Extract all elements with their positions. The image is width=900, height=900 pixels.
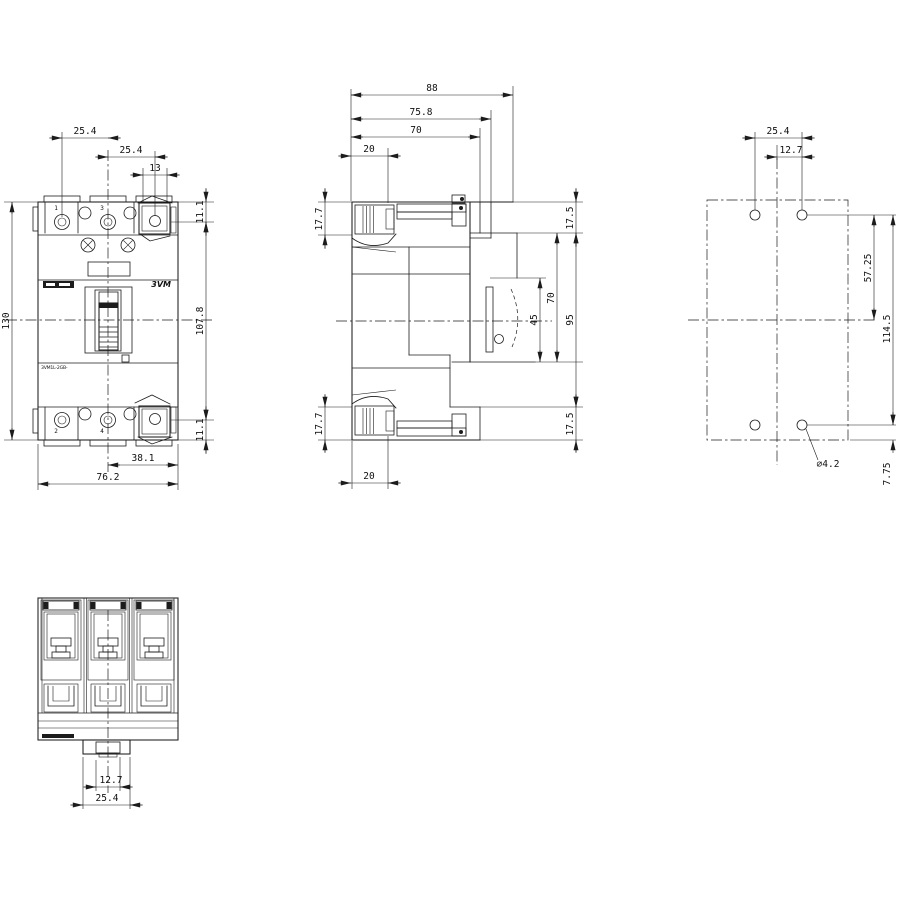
svg-text:76.2: 76.2 <box>97 472 120 483</box>
svg-text:17.7: 17.7 <box>314 208 325 231</box>
dim-bottom-inner: 12.7 <box>83 775 133 787</box>
dim-side-175-bottom: 17.5 <box>565 394 576 453</box>
dim-drill-bottom-offset: 7.75 <box>882 412 893 485</box>
svg-text:17.7: 17.7 <box>314 413 325 436</box>
dim-side-depth-case: 70 <box>351 125 480 137</box>
dim-side-front-95: 95 <box>565 233 576 407</box>
dim-front-pitch2: 25.4 <box>95 145 168 157</box>
dim-front-mid-height: 107.8 <box>195 222 206 420</box>
cover-screw <box>121 238 135 252</box>
dim-bottom-outer: 25.4 <box>70 793 143 805</box>
bottom-pole-modules <box>41 600 174 712</box>
dim-side-depth-cover: 75.8 <box>351 107 491 119</box>
svg-text:12.7: 12.7 <box>100 775 123 786</box>
svg-text:130: 130 <box>1 312 12 329</box>
pole-module-1 <box>41 600 81 712</box>
svg-text:88: 88 <box>426 83 438 94</box>
handle-hook <box>495 335 504 344</box>
svg-text:20: 20 <box>363 144 375 155</box>
dim-front-height: 130 <box>1 202 12 440</box>
dim-side-depth-total: 88 <box>351 83 513 95</box>
pole-number: 3 <box>100 205 104 212</box>
front-centerlines <box>6 150 215 472</box>
svg-text:107.8: 107.8 <box>195 306 206 335</box>
svg-text:7.75: 7.75 <box>882 463 893 486</box>
dim-front-term-bottom: 11.1 <box>195 406 206 454</box>
svg-text:25.4: 25.4 <box>120 145 143 156</box>
svg-text:75.8: 75.8 <box>410 107 433 118</box>
dim-drill-half-pitch: 12.7 <box>764 145 815 157</box>
dim-front-lug-width: 13 <box>130 163 180 175</box>
svg-text:17.5: 17.5 <box>565 207 576 230</box>
dim-side-front-70: 70 <box>546 233 557 362</box>
dim-drill-pitch: 25.4 <box>742 126 815 138</box>
front-cover: 3VM 3VM1L-2GB- <box>41 238 171 371</box>
terminal-strap <box>397 204 466 212</box>
drawing-svg: 1 3 3VM <box>0 0 900 900</box>
svg-text:114.5: 114.5 <box>882 315 893 344</box>
dim-side-177-bottom: 17.7 <box>314 394 325 453</box>
drilling-plan-view: 25.4 12.7 57.25 114.5 <box>688 126 896 485</box>
side-view: 88 75.8 70 20 <box>314 83 583 489</box>
model-text: 3VM1L-2GB- <box>41 365 68 371</box>
handle-travel-arc <box>511 289 518 347</box>
svg-text:⌀4.2: ⌀4.2 <box>817 459 840 470</box>
pole-number: 2 <box>54 428 58 435</box>
dim-front-term-top: 11.1 <box>195 188 206 236</box>
accessory-plate <box>486 287 493 352</box>
terminal-strap <box>397 428 466 436</box>
dim-drill-hole-dia: ⌀4.2 <box>806 429 839 470</box>
pole-number: 1 <box>54 205 58 212</box>
dim-side-front-45: 45 <box>529 278 540 362</box>
front-view: 1 3 3VM <box>1 126 215 490</box>
drill-outline <box>688 158 876 465</box>
pole-module-3 <box>134 600 174 712</box>
technical-drawing-page: 1 3 3VM <box>0 0 900 900</box>
dim-side-rear-bottom: 20 <box>338 471 401 483</box>
brand-badge <box>43 281 74 288</box>
svg-text:11.1: 11.1 <box>195 418 206 441</box>
pole-number: 4 <box>100 428 104 435</box>
dim-side-rear-top: 20 <box>338 144 401 156</box>
svg-text:25.4: 25.4 <box>767 126 790 137</box>
front-bottom-terminals: 2 4 <box>45 395 176 444</box>
terminal-lug <box>139 406 170 437</box>
terminal-screw <box>55 413 70 428</box>
svg-text:95: 95 <box>565 314 576 325</box>
svg-text:45: 45 <box>529 314 540 325</box>
dim-front-pitch1: 25.4 <box>49 126 121 138</box>
bottom-dimensions: 12.7 25.4 <box>70 757 143 809</box>
svg-text:38.1: 38.1 <box>132 453 155 464</box>
drill-dimensions: 25.4 12.7 57.25 114.5 <box>742 126 896 485</box>
brand-logo: 3VM <box>151 280 171 289</box>
bottom-view: 12.7 25.4 <box>38 598 178 809</box>
svg-text:25.4: 25.4 <box>96 793 119 804</box>
dim-drill-full-span: 114.5 <box>882 215 893 425</box>
svg-text:25.4: 25.4 <box>74 126 97 137</box>
svg-text:11.1: 11.1 <box>195 200 206 223</box>
side-bottom-terminal <box>352 390 466 436</box>
mounting-hole <box>797 210 807 220</box>
dim-side-175-top: 17.5 <box>565 188 576 247</box>
mounting-hole <box>750 210 760 220</box>
cover-screw <box>81 238 95 252</box>
svg-text:70: 70 <box>546 292 557 304</box>
drill-holes <box>750 210 807 430</box>
svg-text:12.7: 12.7 <box>780 145 803 156</box>
mounting-hole <box>750 420 760 430</box>
front-top-terminals: 1 3 <box>45 196 176 241</box>
svg-text:57.25: 57.25 <box>863 254 874 283</box>
terminal-lug <box>139 203 170 234</box>
svg-text:20: 20 <box>363 471 375 482</box>
dim-side-177-top: 17.7 <box>314 188 325 249</box>
side-front-accessory <box>452 195 518 352</box>
svg-text:13: 13 <box>149 163 160 174</box>
mounting-hole <box>797 420 807 430</box>
side-top-terminal <box>352 204 466 252</box>
svg-text:17.5: 17.5 <box>565 413 576 436</box>
test-button <box>122 355 129 362</box>
dim-drill-upper-span: 57.25 <box>863 215 874 320</box>
bottom-din-tab <box>83 740 130 757</box>
dim-front-center-edge: 38.1 <box>108 453 178 465</box>
dim-front-width: 76.2 <box>38 472 178 484</box>
nameplate <box>88 262 130 276</box>
svg-text:70: 70 <box>410 125 422 136</box>
